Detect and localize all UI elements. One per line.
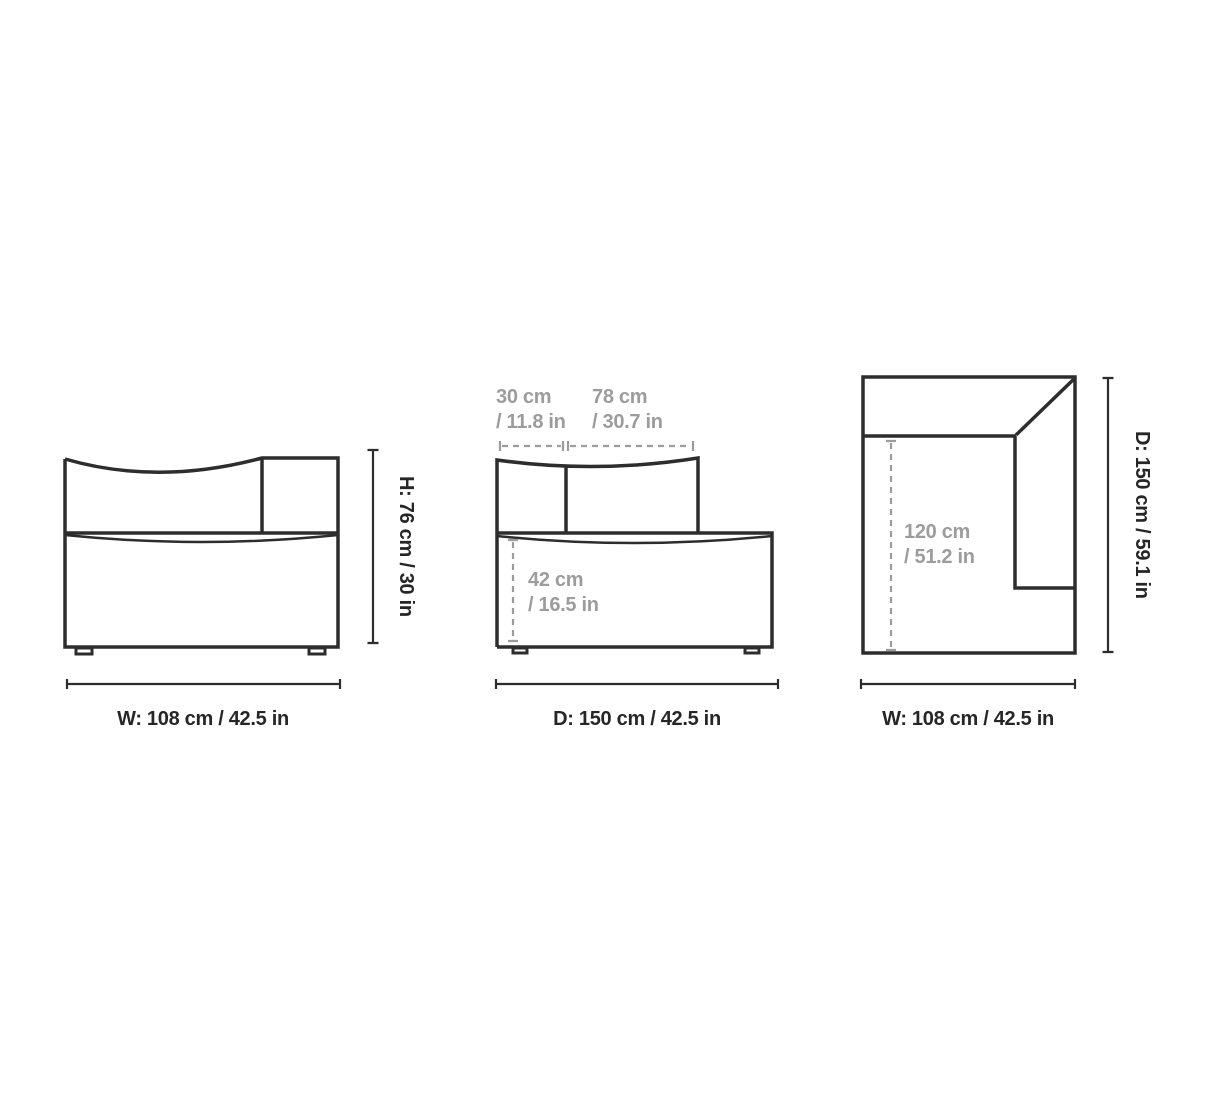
- top-width-label: W: 108 cm / 42.5 in: [882, 707, 1054, 732]
- side-seat-curve: [497, 536, 772, 543]
- side-backrest-outline: [497, 458, 698, 647]
- side-seat-height-label: 42 cm / 16.5 in: [528, 568, 599, 618]
- side-back-depth-label: 30 cm / 11.8 in: [496, 385, 566, 435]
- top-body-outline: [863, 377, 1075, 653]
- side-depth-label: D: 150 cm / 42.5 in: [553, 707, 721, 732]
- front-width-label: W: 108 cm / 42.5 in: [117, 707, 289, 732]
- top-depth-dim-line: [1103, 378, 1114, 652]
- front-view-drawing: [65, 450, 379, 689]
- front-foot-left: [76, 648, 92, 654]
- side-view-drawing: [496, 441, 778, 689]
- top-width-dim-line: [861, 679, 1075, 689]
- top-armrest-line: [1015, 436, 1075, 588]
- side-foot-left: [513, 648, 527, 653]
- top-view-drawing: [861, 377, 1114, 689]
- front-height-label: H: 76 cm / 30 in: [392, 450, 418, 643]
- side-foot-right: [745, 648, 759, 653]
- side-depth-dim-line: [496, 679, 778, 689]
- diagram-line-art: [0, 0, 1215, 1104]
- front-height-dim-line: [368, 450, 379, 643]
- top-corner-diagonal: [1016, 378, 1075, 435]
- front-seat-curve: [65, 535, 338, 542]
- side-seat-depth-label: 78 cm / 30.7 in: [592, 385, 663, 435]
- top-depth-label: D: 150 cm / 59.1 in: [1128, 378, 1154, 652]
- front-foot-right: [309, 648, 325, 654]
- side-back-depth-dash-caps: [500, 441, 563, 451]
- front-body-outline: [65, 458, 338, 647]
- front-width-dim-line: [67, 679, 340, 689]
- dimension-diagram: H: 76 cm / 30 in W: 108 cm / 42.5 in 30 …: [0, 0, 1215, 1104]
- top-inner-depth-label: 120 cm / 51.2 in: [904, 520, 975, 570]
